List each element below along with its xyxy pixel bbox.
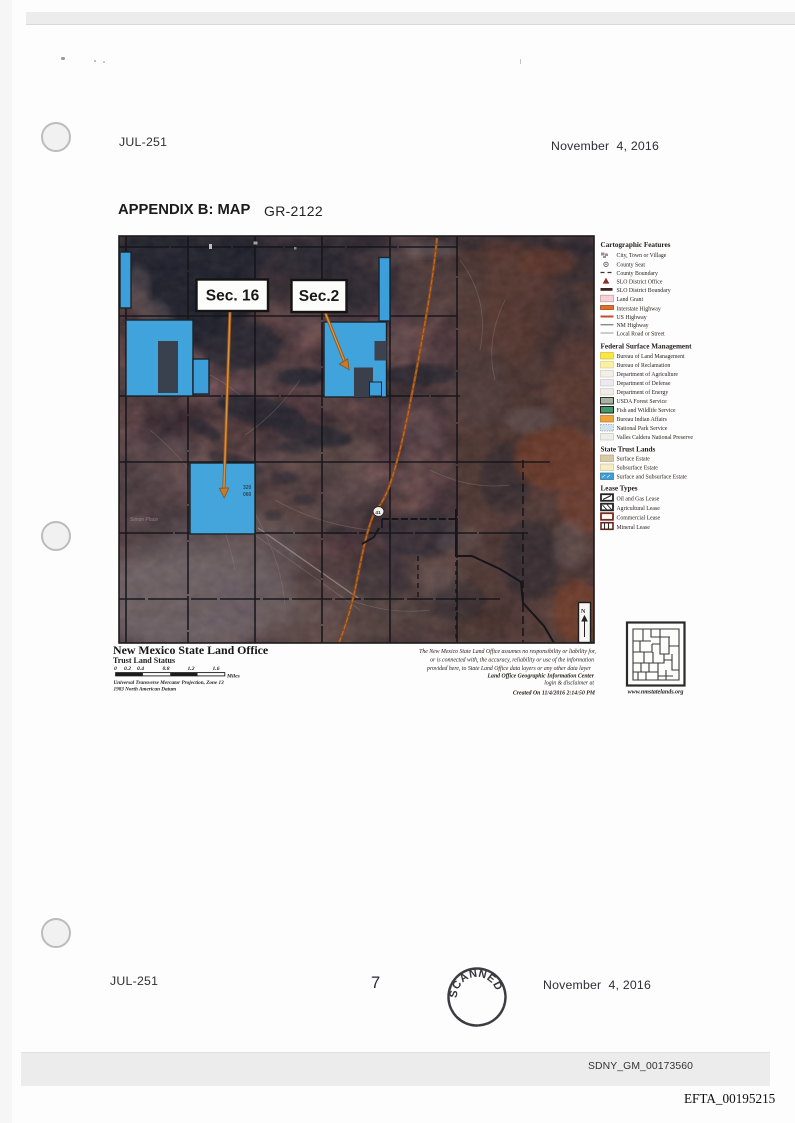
svg-text:Department of Agriculture: Department of Agriculture [617, 371, 679, 378]
svg-text:060: 060 [243, 492, 252, 498]
svg-text:Department of Defense: Department of Defense [617, 380, 672, 387]
svg-text:State Trust Lands: State Trust Lands [601, 446, 656, 454]
svg-text:Oil and Gas Lease: Oil and Gas Lease [617, 496, 660, 502]
svg-text:The New Mexico State Land Offi: The New Mexico State Land Office assumes… [419, 648, 596, 655]
svg-text:Department of Energy: Department of Energy [617, 389, 669, 396]
svg-text:Bureau of Reclamation: Bureau of Reclamation [617, 362, 671, 369]
svg-text:Local Road or Street: Local Road or Street [617, 332, 666, 338]
svg-text:US Highway: US Highway [617, 315, 647, 321]
svg-text:USDA Forest Service: USDA Forest Service [617, 399, 668, 405]
svg-text:County Seat: County Seat [617, 263, 646, 269]
svg-text:New Mexico State Land Office: New Mexico State Land Office [113, 643, 268, 657]
svg-text:Bureau Indian Affairs: Bureau Indian Affairs [617, 416, 668, 423]
svg-text:Land Grant: Land Grant [617, 297, 644, 303]
svg-text:Mineral Lease: Mineral Lease [617, 525, 651, 531]
svg-text:Sec. 16: Sec. 16 [206, 288, 260, 305]
svg-text:www.nmstatelands.org: www.nmstatelands.org [628, 690, 684, 696]
svg-text:NM Highway: NM Highway [617, 323, 649, 329]
svg-text:Surface Estate: Surface Estate [617, 456, 651, 463]
svg-text:City, Town or Village: City, Town or Village [617, 253, 667, 259]
svg-text:320: 320 [243, 485, 252, 491]
svg-text:1.6: 1.6 [213, 666, 220, 672]
svg-text:Sec.2: Sec.2 [299, 288, 340, 305]
svg-text:login & disclaimer at: login & disclaimer at [544, 681, 594, 687]
svg-text:SLO District Boundary: SLO District Boundary [617, 288, 671, 294]
svg-text:provided here, to State Land O: provided here, to State Land Office data… [426, 665, 592, 672]
svg-text:1.2: 1.2 [188, 666, 195, 672]
svg-text:Cartographic Features: Cartographic Features [601, 241, 671, 249]
svg-text:Interstate Highway: Interstate Highway [617, 307, 661, 313]
svg-text:Commercial Lease: Commercial Lease [617, 515, 661, 521]
svg-text:Valles Caldera National Preser: Valles Caldera National Preserve [617, 435, 694, 441]
svg-text:Simon Place: Simon Place [130, 517, 158, 523]
svg-text:Trust Land Status: Trust Land Status [113, 656, 175, 665]
svg-text:41: 41 [375, 510, 381, 516]
svg-text:0.8: 0.8 [163, 666, 170, 672]
svg-text:SCANNED: SCANNED [448, 967, 506, 1000]
svg-text:Fish and Wildlife Service: Fish and Wildlife Service [617, 407, 676, 414]
svg-text:0: 0 [114, 666, 117, 672]
svg-text:National Park Service: National Park Service [617, 426, 668, 432]
svg-text:Agricultural Lease: Agricultural Lease [617, 506, 661, 512]
svg-text:Universal Transverse Mercator: Universal Transverse Mercator Projection… [114, 680, 225, 686]
svg-text:N: N [581, 609, 586, 615]
svg-text:Land Office Geographic Informa: Land Office Geographic Information Cente… [487, 674, 595, 680]
svg-text:Created On 11/4/2016 2:14:50 P: Created On 11/4/2016 2:14:50 PM [513, 691, 596, 697]
svg-text:SLO District Office: SLO District Office [617, 279, 663, 286]
svg-text:1983 North American Datum: 1983 North American Datum [114, 687, 177, 693]
svg-text:Subsurface Estate: Subsurface Estate [617, 465, 659, 472]
svg-text:Surface and Subsurface Estate: Surface and Subsurface Estate [617, 474, 688, 481]
svg-text:or is connected with, the accu: or is connected with, the accuracy, reli… [430, 657, 594, 664]
svg-text:0.4: 0.4 [137, 666, 144, 672]
svg-text:0.2: 0.2 [124, 666, 131, 672]
svg-text:Lease Types: Lease Types [601, 485, 638, 493]
svg-text:Bureau of Land Management: Bureau of Land Management [617, 353, 685, 360]
svg-text:Miles: Miles [226, 674, 240, 680]
svg-text:County Boundary: County Boundary [617, 271, 658, 277]
svg-text:Federal Surface Management: Federal Surface Management [601, 343, 693, 351]
